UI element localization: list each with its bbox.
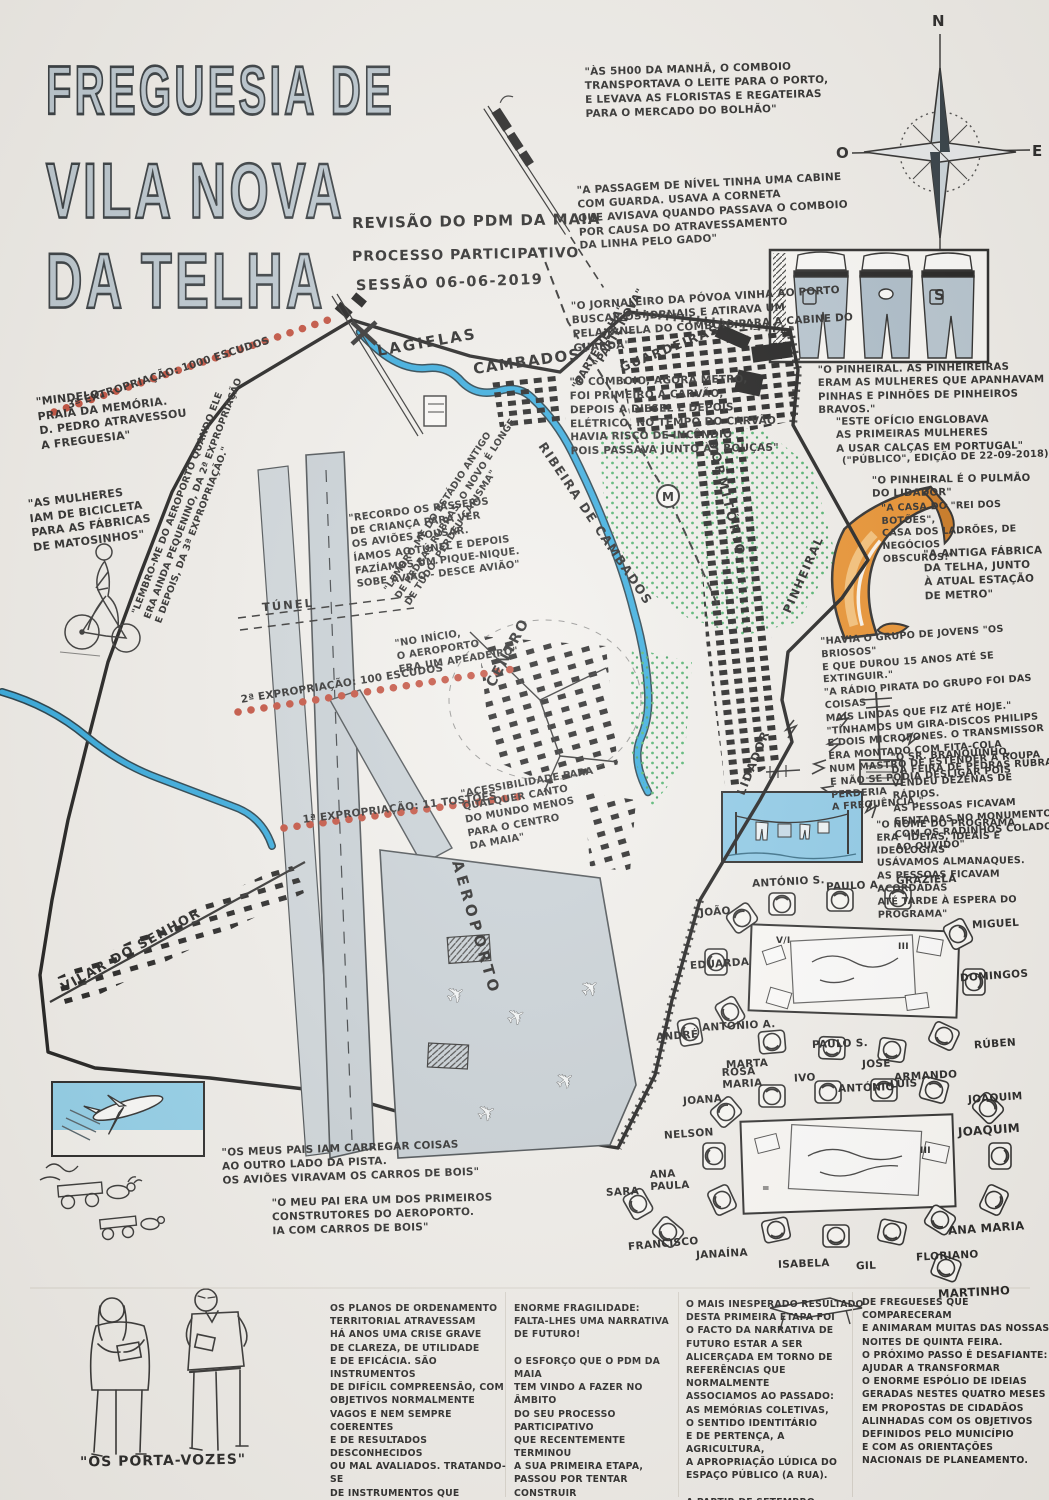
quote-programa: "O NOME DO PROGRAMA ERA "IDEIAS, IDEAIS … [876,816,1049,922]
airplane-sketch [52,1081,204,1156]
participant-name: ANTÓNIO [838,1081,895,1095]
participant-name: GRAZIELA [896,873,957,887]
table-mark: V/I [776,936,791,946]
participant-name: SARA [606,1185,640,1199]
participant-name: JOSÉ [862,1058,891,1071]
poster-title-line-1: FREGUESIA DE [46,52,395,131]
quote-comboio-metro: "O COMBOIO, AGORA METRO, FOI PRIMEIRO A … [569,372,830,460]
participant-name: ANA PAULA [649,1167,690,1193]
subtitle-line-2: PROCESSO PARTICIPATIVO [352,244,580,266]
quote-fabrica-telha: "A ANTIGA FÁBRICA DA TELHA, JUNTO À ATUA… [923,544,1049,604]
participant-name: IVO [794,1071,816,1084]
participant-name: PAULO S. [812,1037,868,1051]
river-west-stream [2,692,272,846]
quote-pulmao: "O PINHEIRAL É O PULMÃO DO LIDADOR" [872,471,1049,501]
airport-apron [380,850,636,1158]
footer-column-3: O MAIS INESPERADO RESULTADO DESTA PRIMEI… [686,1298,866,1500]
participant-name: JOÃO [700,905,732,919]
poster: ✈ ✈ ✈ ✈ ✈ [0,0,1049,1500]
participant-name: GIL [856,1260,877,1273]
compass-east-label: E [1032,142,1042,162]
participant-name: MIGUEL [972,917,1020,932]
compass-north-label: N [932,12,945,32]
label-cambados: CAMBADOS [472,345,582,378]
participant-name: ROSA MARIA [721,1065,762,1091]
participant-name: ISABELA [778,1257,830,1271]
vilar-buildings [52,862,306,1010]
quote-pinheireiras: "O PINHEIRAL. AS PINHEIREIRAS ERAM AS MU… [818,360,1049,418]
porta-vozes-caption: "OS PORTA-VOZES" [80,1451,246,1472]
poster-title-line-3: DA TELHA [46,236,326,326]
compass-west-label: O [836,144,849,164]
quote-comboio-leite: "ÀS 5H00 DA MANHÃ, O COMBOIO TRANSPORTAV… [584,58,895,122]
quote-meu-pai: "O MEU PAI ERA UM DOS PRIMEIROS CONSTRUT… [271,1191,517,1239]
table-mark: = [762,1184,770,1194]
table-mark: III [898,942,909,952]
metro-station-icon: M [662,490,674,504]
compass-south-label: S [934,286,945,306]
bicycle-woman-sketch [60,544,140,656]
participant-name: PAULO A. [826,879,883,893]
porta-vozes-sketch [91,1289,248,1456]
poster-title-line-2: VILA NOVA [46,146,345,236]
table-mark: III [920,1146,931,1156]
ox-cart-sketch [40,1164,164,1240]
footer-column-2: ENORME FRAGILIDADE: FALTA-LHES UMA NARRA… [514,1302,684,1500]
footer-column-1: OS PLANOS DE ORDENAMENTO TERRITORIAL ATR… [330,1302,510,1500]
footer-column-4: DE FREGUESES QUE COMPARECERAM E ANIMARAM… [862,1296,1049,1467]
